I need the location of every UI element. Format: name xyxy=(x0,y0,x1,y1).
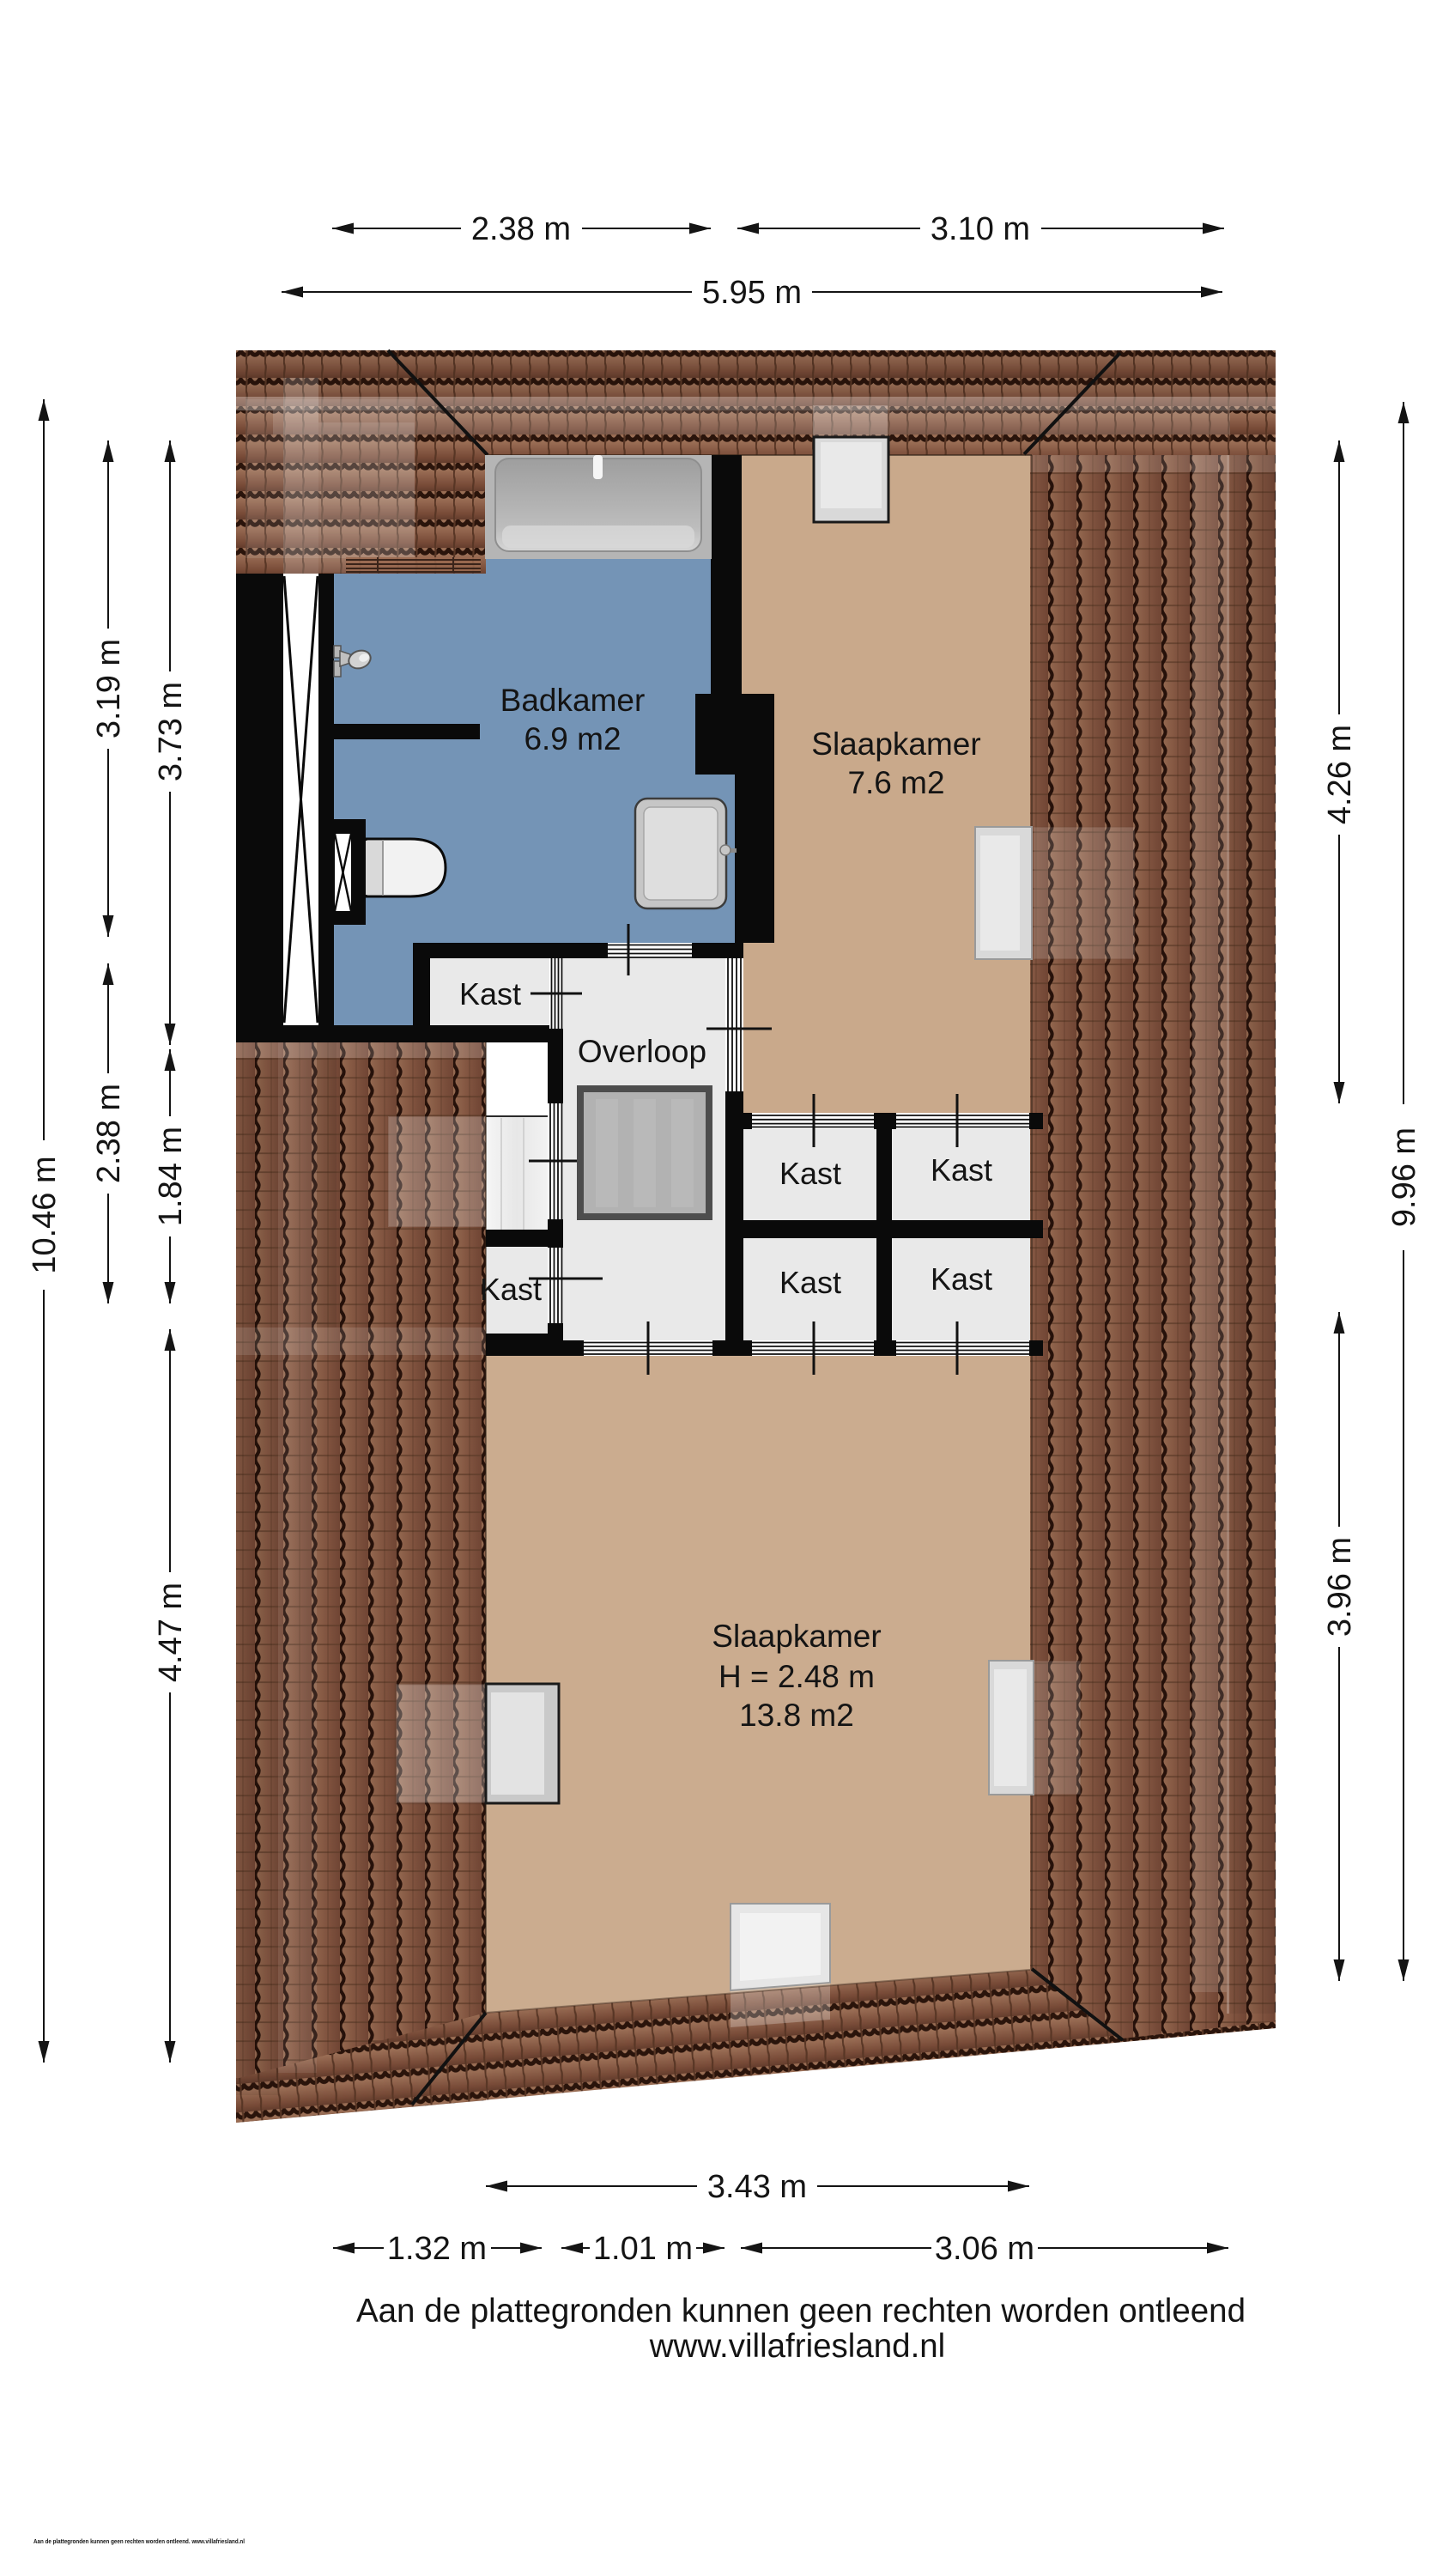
svg-text:1.84 m: 1.84 m xyxy=(153,1127,189,1226)
svg-text:1.32 m: 1.32 m xyxy=(387,2231,487,2267)
svg-text:Badkamer: Badkamer xyxy=(500,683,646,718)
svg-text:Kast: Kast xyxy=(480,1272,542,1307)
svg-text:1.01 m: 1.01 m xyxy=(593,2231,693,2267)
svg-text:13.8 m2: 13.8 m2 xyxy=(739,1698,854,1733)
svg-text:4.26 m: 4.26 m xyxy=(1322,725,1358,824)
svg-text:Kast: Kast xyxy=(931,1152,992,1188)
svg-text:3.06 m: 3.06 m xyxy=(935,2231,1034,2267)
svg-text:7.6 m2: 7.6 m2 xyxy=(847,765,944,800)
svg-text:Aan de plattegronden kunnen ge: Aan de plattegronden kunnen geen rechten… xyxy=(33,2537,245,2545)
svg-text:4.47 m: 4.47 m xyxy=(153,1583,189,1682)
svg-text:10.46 m: 10.46 m xyxy=(27,1156,63,1273)
svg-text:www.villafriesland.nl: www.villafriesland.nl xyxy=(649,2328,946,2365)
svg-text:3.19 m: 3.19 m xyxy=(91,639,127,738)
svg-text:Kast: Kast xyxy=(931,1261,992,1297)
svg-text:2.38 m: 2.38 m xyxy=(91,1084,127,1183)
svg-text:6.9 m2: 6.9 m2 xyxy=(524,721,621,756)
svg-text:Kast: Kast xyxy=(459,976,521,1012)
svg-text:3.43 m: 3.43 m xyxy=(707,2169,807,2205)
svg-text:H = 2.48 m: H = 2.48 m xyxy=(718,1659,875,1694)
svg-text:3.10 m: 3.10 m xyxy=(931,211,1030,247)
svg-text:2.38 m: 2.38 m xyxy=(471,211,571,247)
svg-text:9.96 m: 9.96 m xyxy=(1386,1127,1422,1227)
svg-text:3.73 m: 3.73 m xyxy=(153,682,189,781)
svg-text:Kast: Kast xyxy=(779,1156,841,1191)
svg-text:5.95 m: 5.95 m xyxy=(702,275,802,311)
svg-text:3.96 m: 3.96 m xyxy=(1322,1537,1358,1637)
svg-text:Slaapkamer: Slaapkamer xyxy=(811,726,980,762)
svg-text:Kast: Kast xyxy=(779,1265,841,1300)
svg-text:Overloop: Overloop xyxy=(578,1034,706,1069)
svg-text:Aan de plattegronden kunnen ge: Aan de plattegronden kunnen geen rechten… xyxy=(356,2293,1246,2330)
svg-text:Slaapkamer: Slaapkamer xyxy=(712,1619,881,1654)
